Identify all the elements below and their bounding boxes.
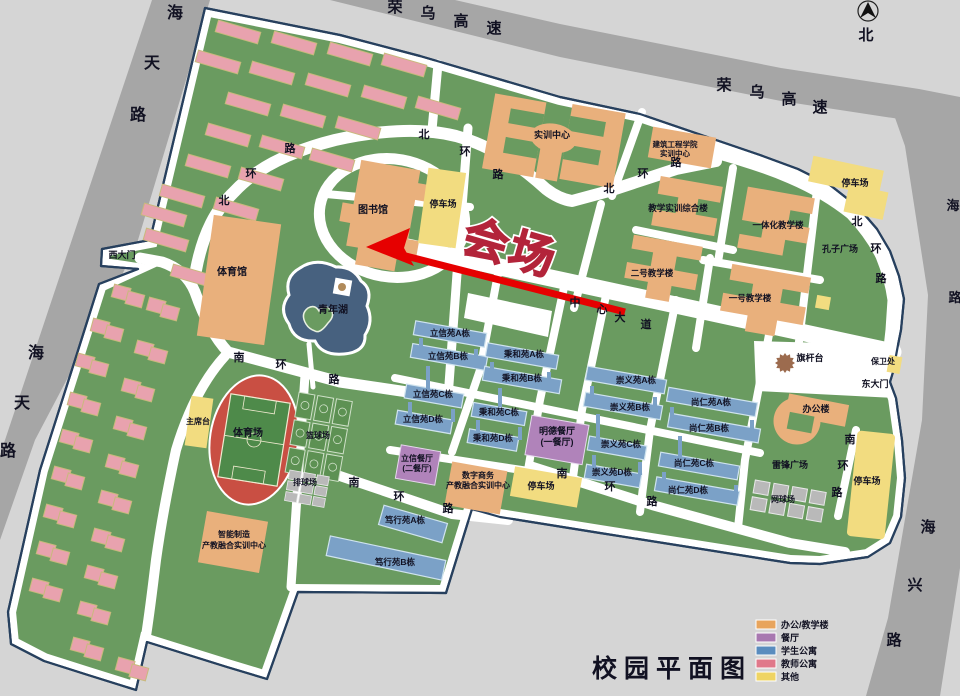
svg-text:主席台: 主席台 <box>186 416 210 426</box>
svg-text:崇义苑D栋: 崇义苑D栋 <box>592 467 633 477</box>
svg-text:网球场: 网球场 <box>771 494 795 504</box>
svg-text:崇义苑C栋: 崇义苑C栋 <box>601 439 642 449</box>
svg-text:速: 速 <box>486 19 501 37</box>
svg-text:路: 路 <box>876 271 888 285</box>
svg-text:其他: 其他 <box>781 671 799 682</box>
svg-text:环: 环 <box>460 145 471 158</box>
svg-text:学生公寓: 学生公寓 <box>781 645 817 656</box>
svg-text:大: 大 <box>615 310 626 324</box>
svg-text:环: 环 <box>605 480 616 493</box>
svg-text:海: 海 <box>167 3 183 22</box>
svg-text:荣: 荣 <box>715 76 732 94</box>
svg-text:(二餐厅): (二餐厅) <box>402 463 432 473</box>
svg-text:孔子广场: 孔子广场 <box>822 243 858 254</box>
svg-text:保卫处: 保卫处 <box>870 356 896 366</box>
svg-text:崇义苑B栋: 崇义苑B栋 <box>610 402 651 412</box>
svg-text:停车场: 停车场 <box>841 177 868 188</box>
svg-text:体育馆: 体育馆 <box>217 265 247 278</box>
svg-text:立信苑B栋: 立信苑B栋 <box>428 351 469 361</box>
svg-text:天: 天 <box>14 395 31 412</box>
svg-text:路: 路 <box>493 167 505 181</box>
svg-text:停车场: 停车场 <box>853 475 880 486</box>
svg-text:建筑工程学院: 建筑工程学院 <box>652 139 698 149</box>
svg-text:道: 道 <box>641 317 652 331</box>
svg-text:中: 中 <box>570 295 581 309</box>
svg-text:立信餐厅: 立信餐厅 <box>401 453 433 463</box>
svg-text:秉和苑A栋: 秉和苑A栋 <box>504 349 545 359</box>
svg-text:一体化教学楼: 一体化教学楼 <box>752 220 804 230</box>
svg-text:路: 路 <box>130 105 147 124</box>
svg-text:路: 路 <box>886 631 902 649</box>
svg-text:路: 路 <box>443 501 455 515</box>
svg-text:教师公寓: 教师公寓 <box>780 658 817 669</box>
svg-text:路: 路 <box>329 372 341 386</box>
svg-text:环: 环 <box>838 459 849 472</box>
svg-text:秉和苑C栋: 秉和苑C栋 <box>479 407 520 417</box>
svg-text:北: 北 <box>419 127 430 141</box>
svg-text:停车场: 停车场 <box>527 480 554 491</box>
svg-text:图书馆: 图书馆 <box>358 203 388 216</box>
svg-text:青年湖: 青年湖 <box>318 303 348 316</box>
svg-text:东大门: 东大门 <box>861 378 888 389</box>
svg-text:校园平面图: 校园平面图 <box>592 654 752 683</box>
svg-text:速: 速 <box>812 98 827 116</box>
svg-text:心: 心 <box>597 303 608 316</box>
svg-text:西大门: 西大门 <box>108 249 135 260</box>
svg-text:办公楼: 办公楼 <box>802 403 829 414</box>
svg-text:环: 环 <box>871 242 882 255</box>
svg-text:天: 天 <box>144 55 161 72</box>
svg-text:尚仁苑A栋: 尚仁苑A栋 <box>691 397 732 407</box>
svg-text:路: 路 <box>0 441 17 460</box>
svg-text:尚仁苑C栋: 尚仁苑C栋 <box>674 458 715 468</box>
svg-text:路: 路 <box>647 494 659 508</box>
svg-text:产教融合实训中心: 产教融合实训中心 <box>202 540 266 550</box>
svg-text:教学实训综合楼: 教学实训综合楼 <box>647 203 708 213</box>
svg-text:兴: 兴 <box>907 577 922 594</box>
svg-text:笃行苑B栋: 笃行苑B栋 <box>374 557 416 567</box>
svg-text:办公/教学楼: 办公/教学楼 <box>781 619 829 630</box>
svg-text:南: 南 <box>234 350 245 364</box>
svg-text:海: 海 <box>946 198 959 213</box>
svg-text:路: 路 <box>948 290 960 305</box>
svg-text:实训中心: 实训中心 <box>534 129 570 140</box>
svg-text:实训中心: 实训中心 <box>660 148 690 158</box>
svg-text:北: 北 <box>604 181 615 195</box>
svg-text:立信苑A栋: 立信苑A栋 <box>430 328 471 338</box>
svg-text:环: 环 <box>638 167 649 180</box>
svg-text:雷锋广场: 雷锋广场 <box>772 459 808 470</box>
svg-text:篮球场: 篮球场 <box>305 430 330 440</box>
svg-text:路: 路 <box>285 141 297 155</box>
svg-text:排球场: 排球场 <box>293 477 317 487</box>
svg-text:环: 环 <box>394 490 405 503</box>
svg-text:笃行苑A栋: 笃行苑A栋 <box>384 515 426 525</box>
svg-text:南: 南 <box>557 466 568 480</box>
svg-text:餐厅: 餐厅 <box>780 632 799 643</box>
svg-text:环: 环 <box>246 167 257 180</box>
svg-text:停车场: 停车场 <box>429 198 456 209</box>
svg-text:海: 海 <box>920 518 935 536</box>
svg-text:乌: 乌 <box>749 83 764 101</box>
svg-text:产教融合实训中心: 产教融合实训中心 <box>446 480 510 490</box>
svg-text:立信苑D栋: 立信苑D栋 <box>403 414 444 424</box>
svg-text:旗杆台: 旗杆台 <box>796 352 823 363</box>
svg-text:北: 北 <box>852 214 863 228</box>
svg-text:立信苑C栋: 立信苑C栋 <box>413 389 454 399</box>
svg-text:一号教学楼: 一号教学楼 <box>729 293 772 303</box>
svg-text:高: 高 <box>781 90 796 108</box>
svg-text:南: 南 <box>845 432 856 446</box>
svg-text:高: 高 <box>453 12 468 30</box>
svg-text:尚仁苑B栋: 尚仁苑B栋 <box>689 423 730 433</box>
svg-text:数字商务: 数字商务 <box>462 470 495 480</box>
svg-text:乌: 乌 <box>420 4 435 22</box>
svg-text:南: 南 <box>349 475 360 489</box>
svg-text:北: 北 <box>858 27 873 44</box>
svg-text:智能制造: 智能制造 <box>218 529 250 539</box>
svg-text:崇义苑A栋: 崇义苑A栋 <box>616 375 657 385</box>
svg-text:荣: 荣 <box>386 0 403 16</box>
svg-text:(一餐厅): (一餐厅) <box>541 436 574 447</box>
svg-text:二号教学楼: 二号教学楼 <box>631 268 674 278</box>
svg-text:海: 海 <box>28 343 44 362</box>
svg-text:环: 环 <box>276 358 287 371</box>
svg-text:秉和苑D栋: 秉和苑D栋 <box>473 433 514 443</box>
svg-text:尚仁苑D栋: 尚仁苑D栋 <box>668 485 709 495</box>
svg-text:体育场: 体育场 <box>233 426 263 439</box>
svg-text:路: 路 <box>832 485 844 499</box>
svg-text:秉和苑B栋: 秉和苑B栋 <box>502 373 543 383</box>
svg-text:明德餐厅: 明德餐厅 <box>539 425 575 436</box>
svg-text:北: 北 <box>219 193 230 207</box>
